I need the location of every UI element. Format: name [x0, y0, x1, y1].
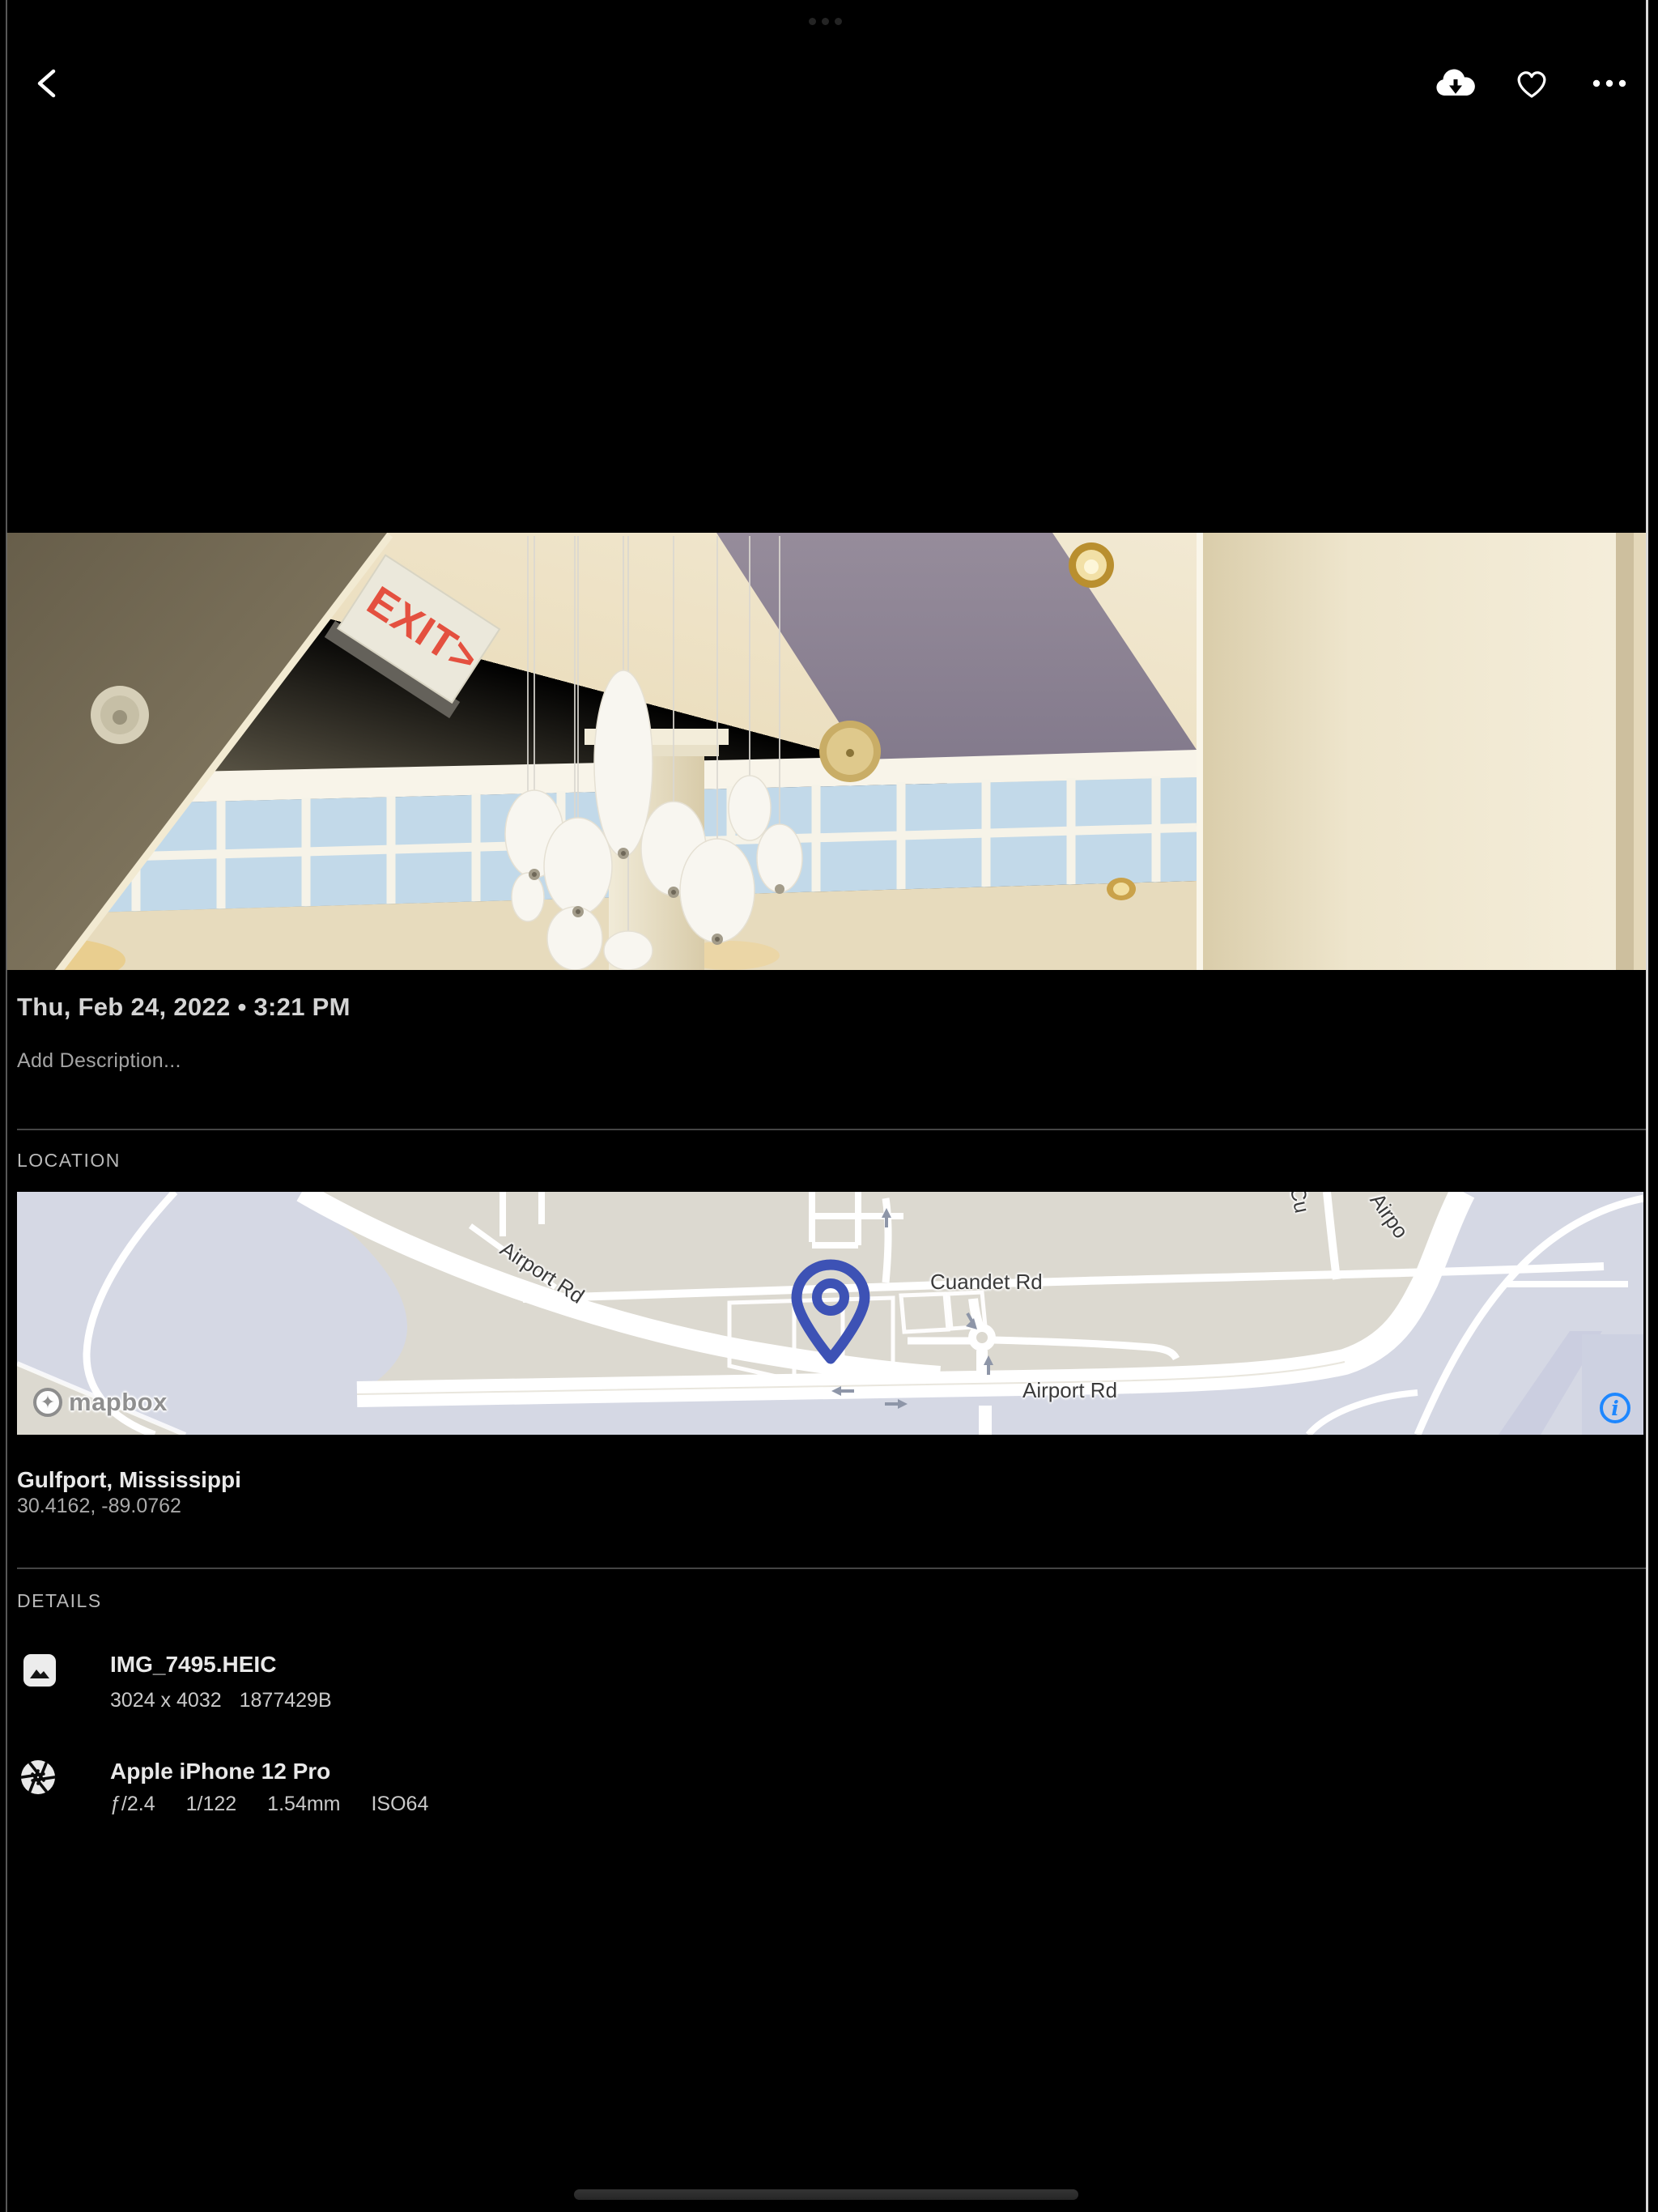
camera-name: Apple iPhone 12 Pro: [110, 1759, 330, 1784]
camera-shutter: 1/122: [186, 1793, 237, 1815]
download-button[interactable]: [1435, 64, 1477, 106]
map-info-button[interactable]: i: [1600, 1393, 1630, 1423]
photo-view[interactable]: EXIT>: [6, 533, 1647, 970]
file-name: IMG_7495.HEIC: [110, 1652, 276, 1678]
camera-meta: ƒ/2.41/1221.54mmISO64: [110, 1793, 446, 1816]
location-map[interactable]: Airport Rd Cuandet Rd Airport Rd Cu Airp…: [17, 1192, 1643, 1435]
favorite-button[interactable]: [1511, 64, 1553, 106]
mapbox-wordmark: mapbox: [69, 1388, 168, 1417]
window-edge-left: [6, 0, 7, 2212]
divider: [17, 1568, 1646, 1569]
description-field[interactable]: Add Description...: [17, 1049, 181, 1073]
divider: [17, 1129, 1646, 1130]
more-button[interactable]: [1588, 64, 1630, 106]
window-edge-right[interactable]: [1646, 0, 1648, 2212]
ellipsis-icon: [1590, 77, 1629, 94]
home-indicator[interactable]: [574, 2189, 1078, 2200]
file-size: 1877429B: [240, 1689, 332, 1712]
capture-date: Thu, Feb 24, 2022 • 3:21 PM: [17, 993, 351, 1022]
photo-illustration: EXIT>: [6, 533, 1647, 970]
camera-iso: ISO64: [371, 1793, 428, 1815]
file-dimensions: 3024 x 4032: [110, 1689, 222, 1712]
chevron-left-icon: [31, 66, 66, 105]
mapbox-attribution[interactable]: ✦ mapbox: [33, 1388, 168, 1417]
mapbox-logo-icon: ✦: [33, 1388, 62, 1417]
details-section-label: DETAILS: [17, 1590, 102, 1612]
image-file-icon: [23, 1653, 57, 1691]
location-coordinates: 30.4162, -89.0762: [17, 1495, 181, 1518]
file-meta: 3024 x 40321877429B: [110, 1689, 350, 1712]
location-section-label: LOCATION: [17, 1150, 121, 1172]
cloud-download-icon: [1434, 66, 1477, 104]
heart-icon: [1512, 66, 1551, 105]
camera-aperture: ƒ/2.4: [110, 1793, 155, 1815]
back-button[interactable]: [28, 64, 70, 106]
camera-focal-length: 1.54mm: [267, 1793, 340, 1815]
street-label-airport-rd: Airport Rd: [1022, 1378, 1117, 1403]
street-label-cuandet-rd: Cuandet Rd: [930, 1270, 1043, 1295]
location-place: Gulfport, Mississippi: [17, 1467, 241, 1493]
multitasking-dots-icon[interactable]: [809, 18, 842, 25]
camera-aperture-icon: [19, 1759, 57, 1800]
